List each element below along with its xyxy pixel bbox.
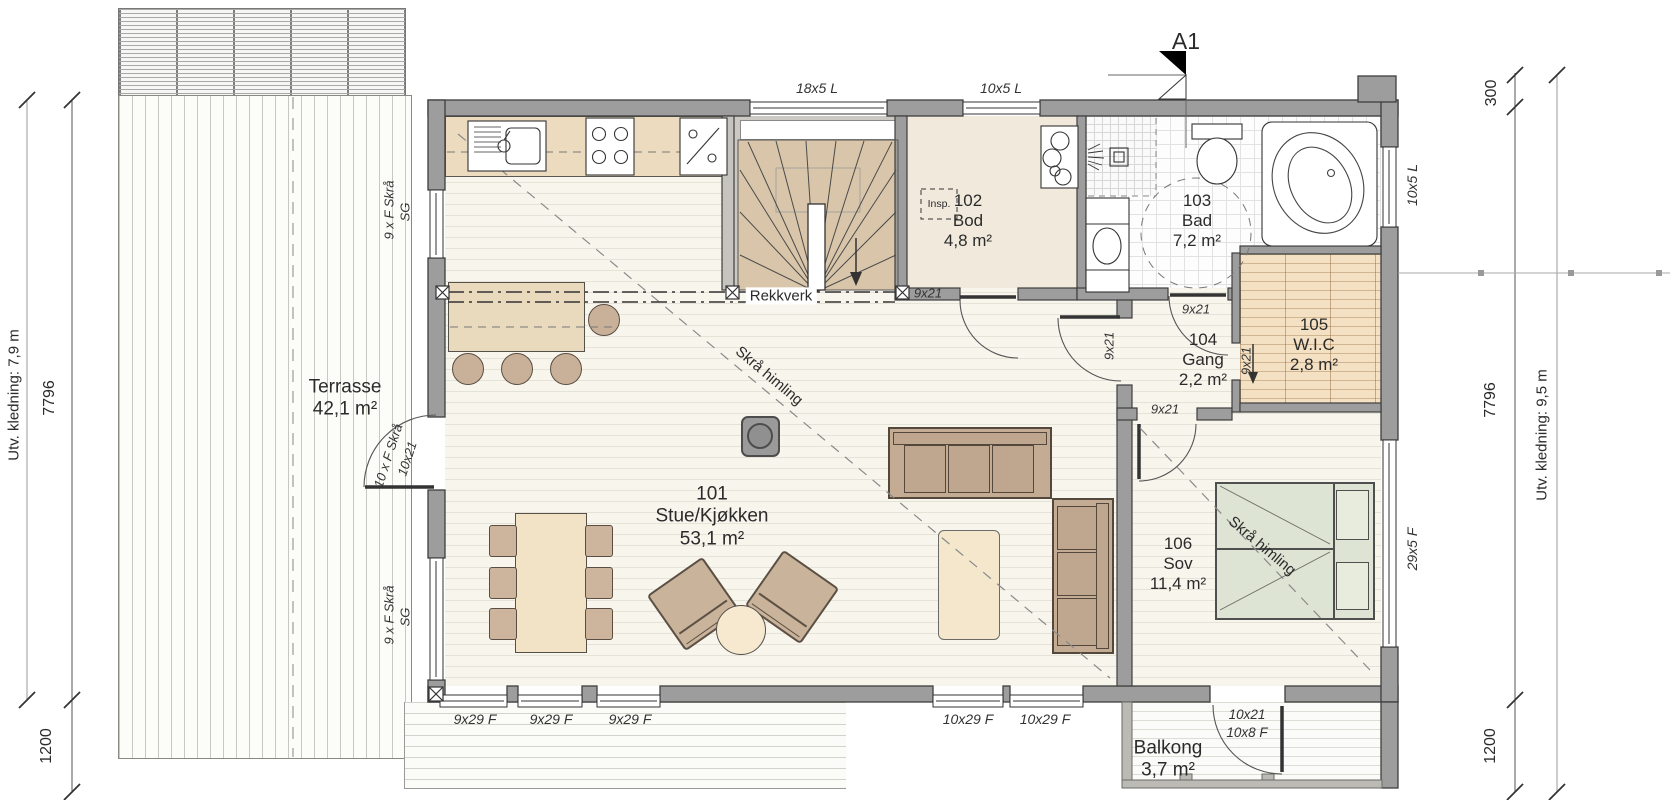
dining-table xyxy=(515,513,587,653)
door-label: 9x21 xyxy=(1240,347,1255,375)
window-label: 10x5 L xyxy=(980,80,1022,96)
dining-chair xyxy=(585,525,613,557)
room-label-balkong: Balkong 3,7 m² xyxy=(1134,738,1203,783)
room-area: 53,1 m² xyxy=(656,528,769,550)
door-label: 9x21 xyxy=(914,287,942,302)
facade-label: SG xyxy=(399,608,414,627)
room-label-sov: 106 Sov 11,4 m² xyxy=(1150,534,1206,594)
sofa xyxy=(888,427,1052,499)
window-label: 10x5 L xyxy=(1404,164,1420,206)
room-number: 102 xyxy=(944,191,992,211)
room-area: 2,2 m² xyxy=(1179,370,1227,390)
door-label: 9x21 xyxy=(1103,332,1118,360)
terrace-deck xyxy=(118,95,412,759)
window-label: 18x5 L xyxy=(796,80,838,96)
railing-label: Rekkverk xyxy=(746,287,817,304)
shower-area xyxy=(1086,116,1156,196)
window-label: 9x29 F xyxy=(609,711,652,727)
room-label-stue: 101 Stue/Kjøkken 53,1 m² xyxy=(656,483,769,550)
dimension-label: 1200 xyxy=(1482,728,1500,764)
bar-table xyxy=(448,282,585,352)
dining-chair xyxy=(585,608,613,640)
dining-chair xyxy=(489,567,517,599)
door-label: 9x21 xyxy=(1151,403,1179,418)
room-area: 7,2 m² xyxy=(1173,231,1221,251)
room-area: 2,8 m² xyxy=(1290,355,1338,375)
dining-chair xyxy=(489,525,517,557)
room-number: 103 xyxy=(1173,191,1221,211)
window-label: 10x29 F xyxy=(1020,711,1071,727)
floor-plan: A1 Terrasse 42,1 m² 101 Stue/Kjøkken 53,… xyxy=(0,0,1670,800)
dimension-label: 7796 xyxy=(41,380,59,416)
window-label: 9x29 F xyxy=(454,711,497,727)
door-label: 10x21 xyxy=(1229,707,1266,723)
room-number: 105 xyxy=(1290,315,1338,335)
dining-chair xyxy=(489,608,517,640)
room-name: Balkong xyxy=(1134,738,1203,760)
stair-treads xyxy=(738,140,898,290)
room-label-bad: 103 Bad 7,2 m² xyxy=(1173,191,1221,251)
facade-label: 9 x F Skrå xyxy=(383,585,398,644)
room-name: Stue/Kjøkken xyxy=(656,506,769,528)
window-label: 29x5 F xyxy=(1404,528,1420,571)
dimension-label: Utv. kledning: 9,5 m xyxy=(1533,369,1550,500)
pergola-hatch xyxy=(118,8,406,97)
dimension-label: 1200 xyxy=(38,728,56,764)
room-name: Bod xyxy=(944,211,992,231)
bar-stool xyxy=(452,353,484,385)
bar-stool xyxy=(550,353,582,385)
room-name: W.I.C xyxy=(1290,335,1338,355)
door-label: 10x8 F xyxy=(1226,725,1267,741)
room-number: 101 xyxy=(656,483,769,505)
room-name: Gang xyxy=(1179,350,1227,370)
room-area: 4,8 m² xyxy=(944,231,992,251)
room-number: 106 xyxy=(1150,534,1206,554)
bar-stool xyxy=(588,304,620,336)
room-label-gang: 104 Gang 2,2 m² xyxy=(1179,330,1227,390)
stair-landing xyxy=(740,120,898,140)
dimension-label: Utv. kledning: 7,9 m xyxy=(5,329,22,460)
room-name: Sov xyxy=(1150,554,1206,574)
facade-label: SG xyxy=(399,203,414,222)
chaise-sofa xyxy=(1052,498,1114,654)
kitchen-counter xyxy=(445,116,729,177)
side-table xyxy=(716,605,766,655)
section-label: A1 xyxy=(1172,28,1200,54)
window-label: 10x29 F xyxy=(943,711,994,727)
door-label: 9x21 xyxy=(1182,303,1210,318)
dining-chair xyxy=(585,567,613,599)
room-area: 11,4 m² xyxy=(1150,574,1206,594)
bed xyxy=(1215,482,1375,620)
dimension-label: 300 xyxy=(1483,80,1501,107)
room-number: 104 xyxy=(1179,330,1227,350)
room-area: 3,7 m² xyxy=(1134,760,1203,782)
bar-stool xyxy=(501,353,533,385)
inspection-label: Insp. xyxy=(928,198,951,210)
dimension-label: 7796 xyxy=(1482,382,1500,418)
room-label-bod: 102 Bod 4,8 m² xyxy=(944,191,992,251)
room-name: Terrasse xyxy=(309,377,382,399)
facade-label: 9 x F Skrå xyxy=(383,180,398,239)
room-label-terrasse: Terrasse 42,1 m² xyxy=(309,377,382,422)
room-name: Bad xyxy=(1173,211,1221,231)
coffee-table xyxy=(938,530,1000,640)
window-label: 9x29 F xyxy=(530,711,573,727)
room-label-wic: 105 W.I.C 2,8 m² xyxy=(1290,315,1338,375)
room-area: 42,1 m² xyxy=(309,399,382,421)
